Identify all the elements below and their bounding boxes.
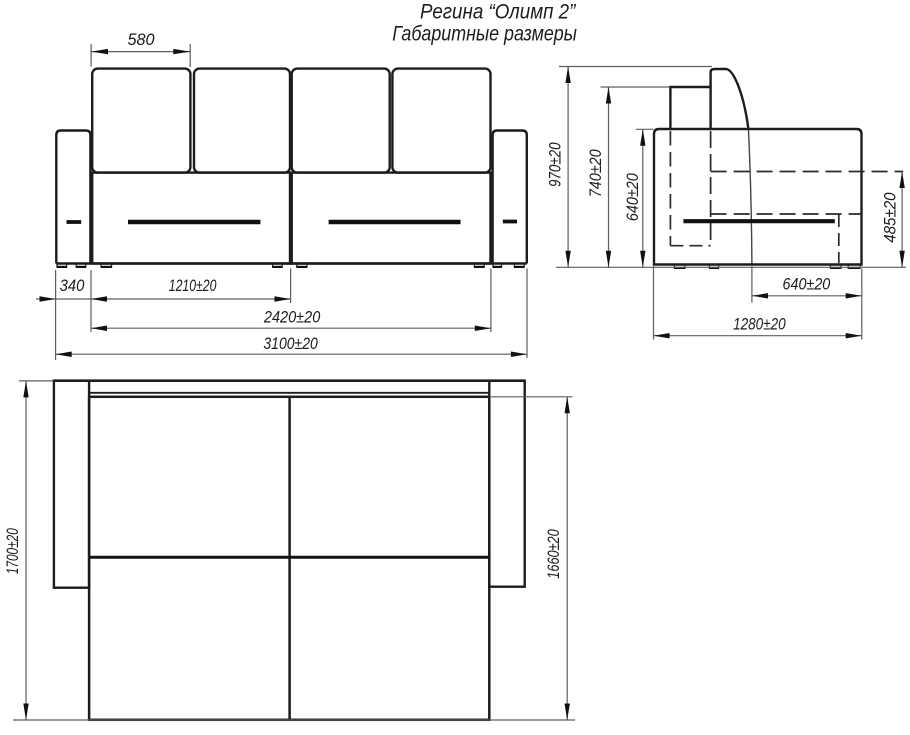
svg-text:Габаритные размеры: Габаритные размеры [392,22,577,46]
svg-text:1210±20: 1210±20 [169,276,217,295]
svg-text:485±20: 485±20 [880,192,899,243]
svg-text:640±20: 640±20 [783,275,831,294]
svg-text:2420±20: 2420±20 [263,307,321,326]
svg-text:1280±20: 1280±20 [733,315,786,334]
svg-text:Регина “Олимп 2”: Регина “Олимп 2” [420,0,576,24]
svg-text:3100±20: 3100±20 [263,334,318,353]
svg-text:580: 580 [128,30,156,49]
svg-text:1660±20: 1660±20 [544,529,563,579]
svg-text:640±20: 640±20 [623,173,642,221]
svg-text:340: 340 [60,276,85,295]
svg-text:1700±20: 1700±20 [3,528,22,574]
svg-text:970±20: 970±20 [546,142,565,187]
svg-text:740±20: 740±20 [586,149,605,197]
